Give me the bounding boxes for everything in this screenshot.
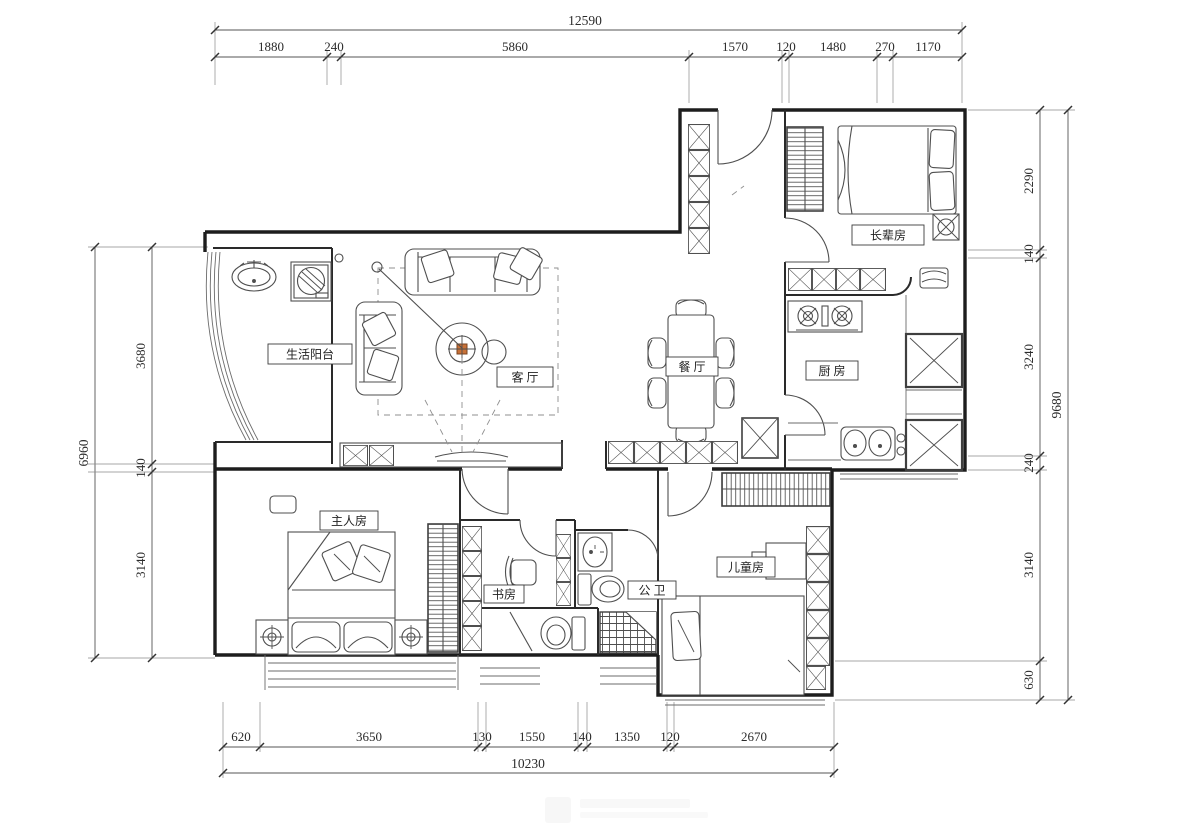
dim-top-seg-2: 5860 <box>502 39 528 54</box>
washing-machine <box>291 262 331 301</box>
entry-door <box>718 110 772 164</box>
dim-bottom-seg-0: 620 <box>231 729 251 744</box>
fridge <box>742 418 778 458</box>
elder-room-door <box>785 218 829 262</box>
elder-room-furniture <box>787 126 959 291</box>
dim-top-seg-6: 270 <box>875 39 895 54</box>
nightstand-left <box>256 620 288 654</box>
dim-bottom-seg-5: 1350 <box>614 729 640 744</box>
dim-right-seg-4: 3140 <box>1021 552 1036 578</box>
room-label-living: 客 厅 <box>497 367 553 387</box>
dim-right-seg-3: 240 <box>1021 453 1036 473</box>
master-bed <box>288 532 395 655</box>
dim-right-seg-2: 3240 <box>1021 344 1036 370</box>
dimension-chain-left: 6960 3680 140 3140 <box>76 243 215 662</box>
master-room-door <box>462 469 508 514</box>
dim-top-total: 12590 <box>568 13 602 28</box>
dim-top-seg-0: 1880 <box>258 39 284 54</box>
dim-bottom-seg-7: 2670 <box>741 729 767 744</box>
bathroom-door <box>628 530 658 560</box>
dim-bottom-total: 10230 <box>511 756 545 771</box>
study-door <box>520 520 556 556</box>
room-label-elder: 长辈房 <box>852 225 924 245</box>
room-label-master-text: 主人房 <box>331 513 367 528</box>
dim-bottom-seg-4: 140 <box>572 729 592 744</box>
study-chair <box>506 556 537 588</box>
room-label-kids: 儿童房 <box>717 557 775 577</box>
room-label-master: 主人房 <box>320 511 378 530</box>
bath-basin <box>578 533 612 571</box>
dim-bottom-seg-6: 120 <box>660 729 680 744</box>
kitchen-shaft-upper <box>906 334 962 387</box>
dim-right-total: 9680 <box>1049 391 1064 418</box>
tv-cabinet <box>340 443 562 467</box>
bath-toilet <box>578 574 624 605</box>
room-label-bathroom-text: 公 卫 <box>638 584 665 598</box>
floor-plan-page: 12590 1880 240 5860 1570 120 1480 270 11… <box>0 0 1200 839</box>
kitchen-door <box>785 395 825 435</box>
tv-set <box>435 452 508 461</box>
lamp-callout-circle <box>372 262 382 272</box>
dim-top-seg-1: 240 <box>324 39 344 54</box>
floor-plan-drawing: 12590 1880 240 5860 1570 120 1480 270 11… <box>0 0 1200 839</box>
gas-stove <box>788 301 862 332</box>
kitchen-shaft-lower <box>906 420 962 470</box>
balcony-fixtures <box>232 254 343 301</box>
elder-bed <box>838 126 956 214</box>
dim-right-seg-5: 630 <box>1021 670 1036 690</box>
shower-area <box>600 612 656 653</box>
nightstand-right <box>395 620 427 654</box>
room-label-bathroom: 公 卫 <box>628 581 676 599</box>
dim-left-total: 6960 <box>76 439 91 466</box>
dim-left-seg-0: 3680 <box>133 343 148 369</box>
wc-toilet <box>541 617 585 650</box>
room-label-kitchen-text: 厨 房 <box>818 363 845 378</box>
kitchen-sink <box>841 427 905 460</box>
room-label-kitchen: 厨 房 <box>806 361 858 380</box>
dim-top-seg-3: 1570 <box>722 39 748 54</box>
dim-right-seg-1: 140 <box>1021 244 1036 264</box>
tv-viewing-cone <box>425 358 500 452</box>
kitchen-fixtures <box>788 301 962 470</box>
kids-bed <box>662 596 804 695</box>
dim-left-seg-2: 3140 <box>133 552 148 578</box>
dim-bottom-seg-1: 3650 <box>356 729 382 744</box>
room-label-elder-text: 长辈房 <box>870 228 906 243</box>
room-label-living-text: 客 厅 <box>511 370 538 385</box>
living-room-furniture <box>340 247 562 467</box>
room-label-study-text: 书房 <box>492 587 516 602</box>
dim-right-seg-0: 2290 <box>1021 168 1036 194</box>
room-label-dining: 餐 厅 <box>666 357 718 376</box>
room-label-kids-text: 儿童房 <box>728 560 764 575</box>
room-label-dining-text: 餐 厅 <box>678 359 705 374</box>
dim-bottom-seg-2: 130 <box>472 729 492 744</box>
room-label-study: 书房 <box>484 585 524 603</box>
dim-bottom-seg-3: 1550 <box>519 729 545 744</box>
dim-top-seg-5: 1480 <box>820 39 846 54</box>
wc-door-leaf <box>510 612 532 651</box>
dim-left-seg-1: 140 <box>133 458 148 478</box>
kids-room-furniture <box>662 473 830 695</box>
study-shelf-mid <box>556 534 570 605</box>
watermark-logo <box>545 797 708 823</box>
dimension-chain-top: 12590 1880 240 5860 1570 120 1480 270 11… <box>211 13 966 103</box>
master-side-table <box>270 496 296 513</box>
elder-stool <box>920 268 948 288</box>
study-shelf-column <box>462 527 481 651</box>
balcony-basin <box>232 260 276 291</box>
dim-top-seg-4: 120 <box>776 39 796 54</box>
floor-drain <box>335 254 343 262</box>
entry-shoe-cabinet <box>688 125 709 254</box>
dimension-chain-bottom: 620 3650 130 1550 140 1350 120 2670 1023… <box>219 702 838 778</box>
elder-bedside-unit <box>933 214 959 240</box>
kids-room-door <box>668 472 712 516</box>
dim-top-seg-7: 1170 <box>915 39 941 54</box>
sofa-side <box>356 302 402 395</box>
room-label-balcony: 生活阳台 <box>268 344 352 364</box>
sofa-main <box>405 247 543 295</box>
elder-closet-row <box>788 268 885 290</box>
kids-shelf-column <box>806 527 829 690</box>
room-label-balcony-text: 生活阳台 <box>286 347 334 362</box>
